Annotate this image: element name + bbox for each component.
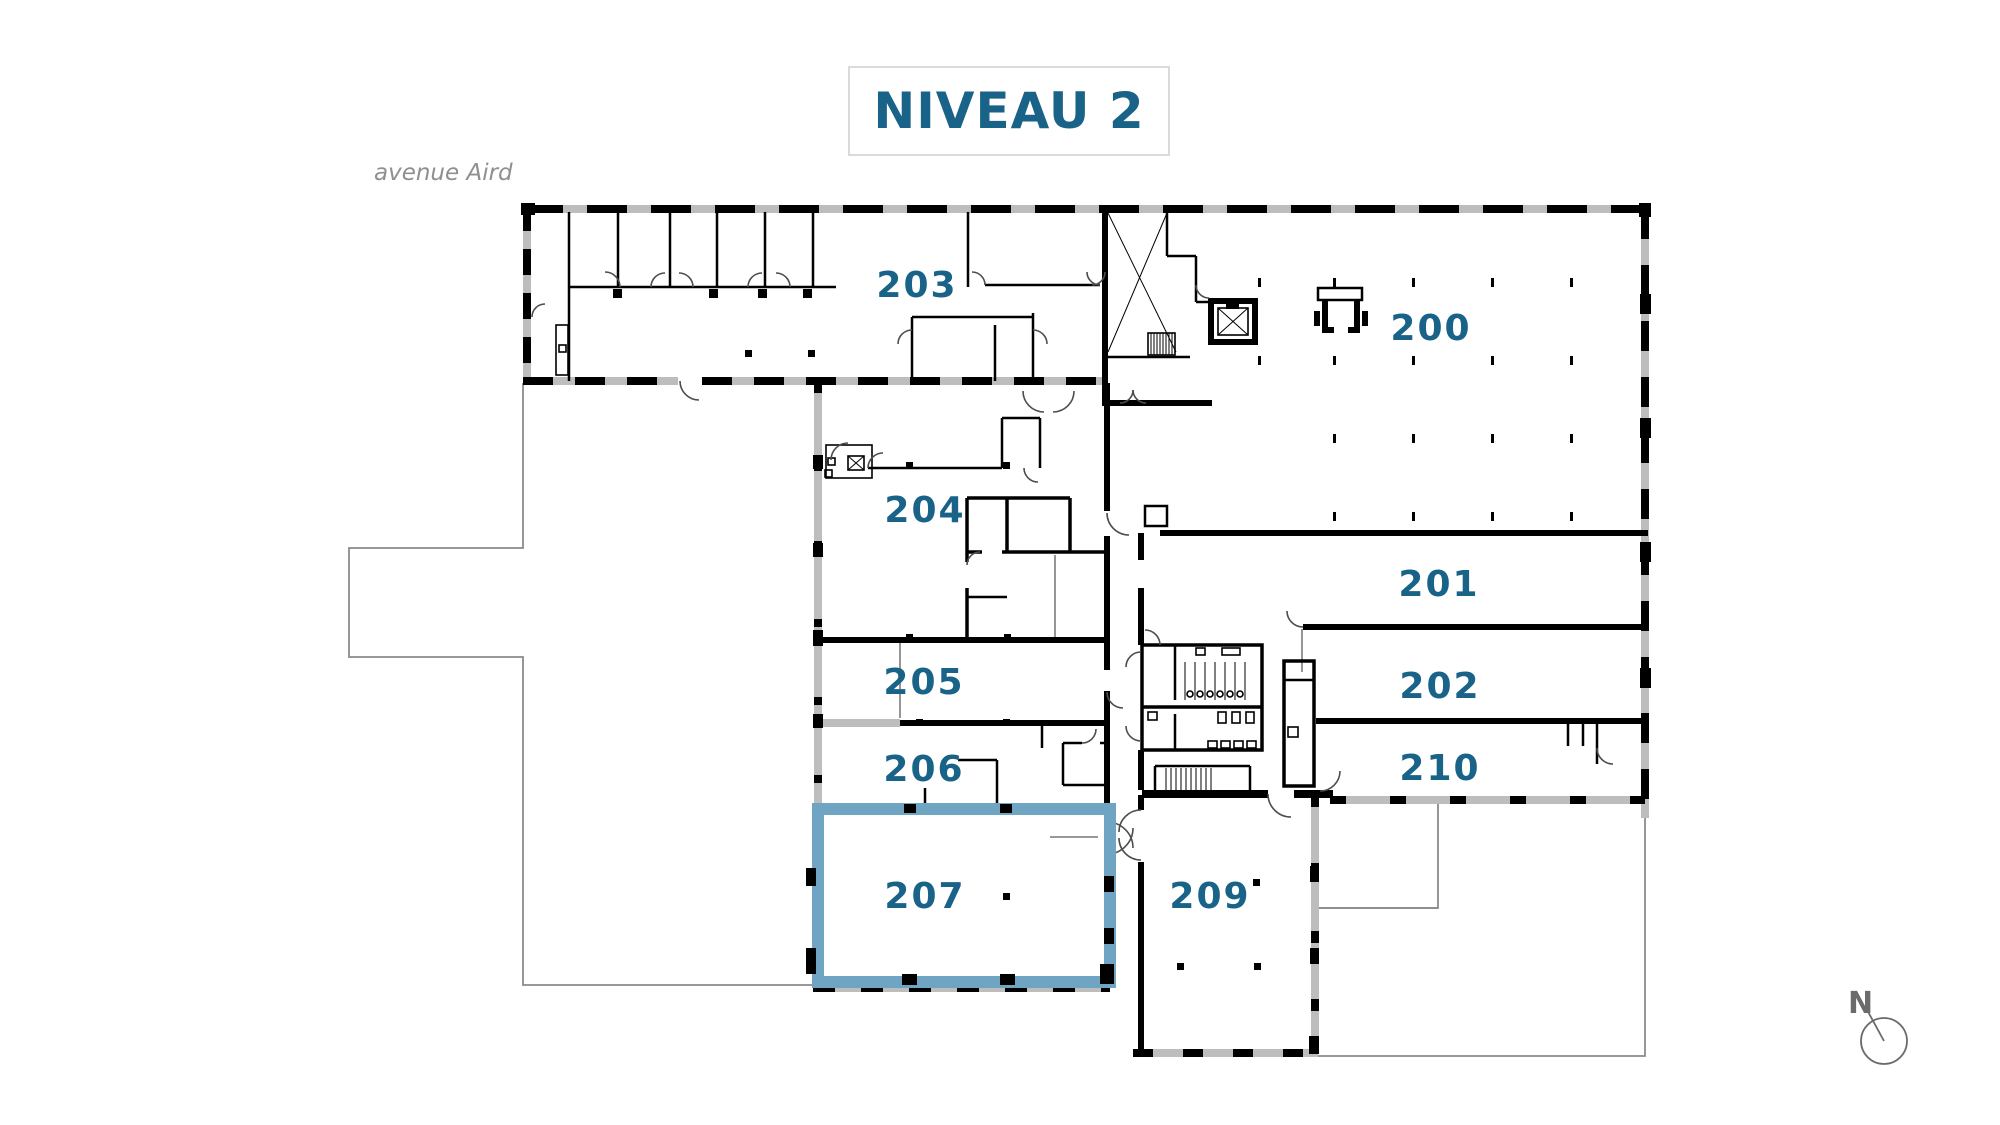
floor-title: NIVEAU 2 (873, 82, 1144, 140)
stairs-core (1148, 333, 1175, 355)
room-label-207[interactable]: 207 (884, 876, 965, 917)
room-label-210[interactable]: 210 (1399, 748, 1480, 789)
north-compass: N (1848, 986, 1907, 1064)
room-label-205[interactable]: 205 (883, 662, 964, 703)
room-label-200[interactable]: 200 (1390, 308, 1471, 349)
dock-door-symbol (1314, 288, 1368, 330)
street-label: avenue Aird (374, 160, 513, 186)
floor-plan-drawing: 203 200 204 201 205 202 206 210 207 209 … (0, 0, 2000, 1125)
room-label-206[interactable]: 206 (883, 749, 964, 790)
floor-plan-page: 203 200 204 201 205 202 206 210 207 209 … (0, 0, 2000, 1125)
room-label-202[interactable]: 202 (1399, 666, 1480, 707)
stairs-south (1166, 768, 1211, 790)
partition-walls (569, 212, 1597, 806)
room-label-204[interactable]: 204 (884, 490, 965, 531)
room-label-203[interactable]: 203 (876, 265, 957, 306)
room-label-209[interactable]: 209 (1169, 876, 1250, 917)
washrooms (1142, 645, 1262, 750)
interior-walls (815, 205, 1648, 1053)
elevator (1211, 301, 1255, 342)
room-label-201[interactable]: 201 (1398, 564, 1479, 605)
floor-title-box: NIVEAU 2 (848, 66, 1170, 156)
kitchenette (826, 445, 872, 478)
fixtures (556, 288, 1368, 790)
